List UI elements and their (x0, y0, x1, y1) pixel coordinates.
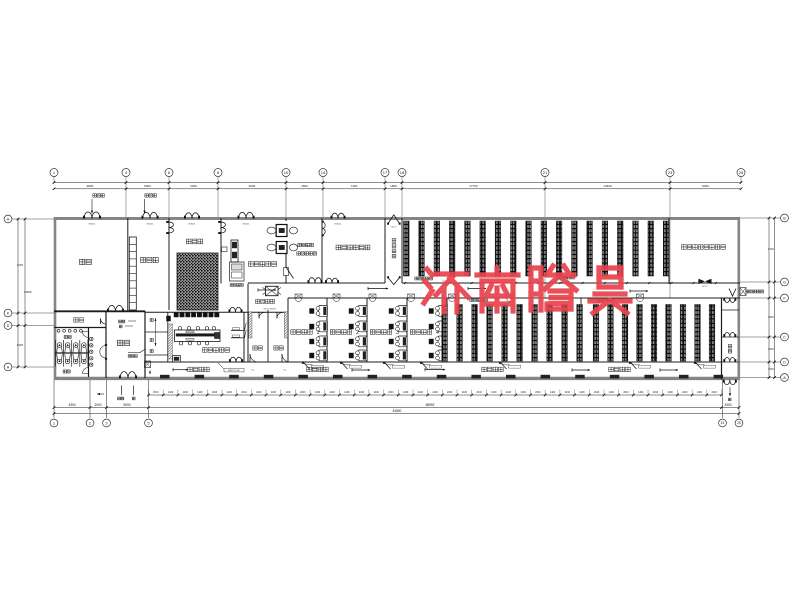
svg-text:4325: 4325 (17, 343, 24, 347)
svg-text:7225: 7225 (17, 263, 24, 267)
svg-text:M0921-1200: M0921-1200 (228, 370, 241, 372)
svg-text:2000: 2000 (724, 403, 731, 407)
svg-text:2043: 2043 (653, 391, 659, 394)
svg-text:1400: 1400 (374, 391, 380, 394)
svg-text:1400: 1400 (403, 391, 409, 394)
svg-text:A: A (7, 365, 10, 369)
svg-text:25: 25 (739, 170, 744, 175)
svg-text:2043: 2043 (300, 391, 306, 394)
svg-text:2043: 2043 (388, 391, 394, 394)
svg-text:14600: 14600 (603, 184, 612, 188)
svg-text:17: 17 (383, 170, 388, 175)
svg-text:14: 14 (321, 170, 326, 175)
svg-text:7400: 7400 (351, 184, 358, 188)
svg-text:23: 23 (668, 170, 673, 175)
svg-text:25: 25 (737, 421, 741, 425)
svg-text:1500: 1500 (768, 367, 774, 371)
svg-text:81800: 81800 (393, 409, 402, 413)
svg-text:1400: 1400 (520, 391, 526, 394)
svg-text:1800: 1800 (390, 184, 397, 188)
svg-text:1400: 1400 (667, 391, 673, 394)
svg-text:4500: 4500 (301, 184, 308, 188)
svg-text:2043: 2043 (183, 391, 189, 394)
svg-text:5000: 5000 (144, 184, 151, 188)
svg-text:M1521: M1521 (335, 224, 342, 226)
svg-text:D: D (7, 324, 10, 328)
svg-text:1400: 1400 (168, 391, 174, 394)
svg-text:2043: 2043 (506, 391, 512, 394)
svg-text:2043: 2043 (594, 391, 600, 394)
svg-text:17700: 17700 (469, 184, 478, 188)
svg-text:2043: 2043 (682, 391, 688, 394)
svg-text:2500: 2500 (768, 347, 774, 351)
svg-text:1400: 1400 (285, 391, 291, 394)
svg-text:A: A (783, 376, 786, 380)
svg-text:4200: 4200 (190, 184, 197, 188)
svg-text:68592: 68592 (426, 403, 435, 407)
svg-text:1400: 1400 (432, 391, 438, 394)
svg-text:4300: 4300 (68, 403, 75, 407)
svg-text:H: H (7, 217, 10, 221)
svg-text:1400: 1400 (697, 391, 703, 394)
svg-text:2043: 2043 (476, 391, 482, 394)
svg-text:1400: 1400 (638, 391, 644, 394)
svg-text:1400: 1400 (256, 391, 262, 394)
svg-text:G: G (783, 280, 786, 284)
svg-text:2043: 2043 (359, 391, 365, 394)
svg-text:1400: 1400 (197, 391, 203, 394)
svg-text:5000: 5000 (123, 403, 130, 407)
svg-text:24: 24 (721, 421, 725, 425)
svg-text:1400: 1400 (579, 391, 585, 394)
svg-text:6000: 6000 (249, 184, 256, 188)
svg-text:1400: 1400 (462, 391, 468, 394)
svg-text:2043: 2043 (565, 391, 571, 394)
svg-text:2043: 2043 (329, 391, 335, 394)
svg-text:2513: 2513 (153, 391, 159, 394)
svg-text:M1521: M1521 (89, 224, 96, 226)
svg-text:1400: 1400 (491, 391, 497, 394)
svg-text:21: 21 (543, 170, 548, 175)
svg-text:3: 3 (105, 420, 107, 425)
svg-text:5: 5 (147, 420, 149, 425)
svg-text:2: 2 (89, 420, 91, 425)
svg-text:K: K (7, 311, 10, 315)
svg-text:M727: M727 (702, 286, 708, 288)
svg-text:1: 1 (53, 420, 55, 425)
svg-text:B: B (783, 216, 786, 220)
svg-text:1400: 1400 (315, 391, 321, 394)
svg-text:9800: 9800 (87, 184, 94, 188)
svg-text:2043: 2043 (623, 391, 629, 394)
svg-text:M727: M727 (391, 227, 397, 229)
svg-text:M1521: M1521 (147, 224, 154, 226)
svg-text:2043: 2043 (212, 391, 218, 394)
svg-text:M1521: M1521 (189, 224, 196, 226)
svg-text:1400: 1400 (227, 391, 233, 394)
svg-text:10: 10 (284, 170, 289, 175)
svg-text:1400: 1400 (609, 391, 615, 394)
svg-text:M0921 M0921: M0921 M0921 (264, 309, 278, 311)
svg-text:2043: 2043 (447, 391, 453, 394)
svg-text:18: 18 (400, 170, 405, 175)
svg-text:2043: 2043 (711, 391, 717, 394)
svg-text:D: D (783, 360, 786, 364)
svg-text:M1521: M1521 (243, 224, 250, 226)
svg-text:3900: 3900 (768, 315, 774, 319)
svg-text:2043: 2043 (271, 391, 277, 394)
svg-text:1400: 1400 (344, 391, 350, 394)
svg-text:6400: 6400 (768, 247, 774, 251)
svg-text:2043: 2043 (535, 391, 541, 394)
svg-text:8300: 8300 (702, 184, 709, 188)
svg-text:14950: 14950 (24, 290, 32, 294)
svg-text:1400: 1400 (550, 391, 556, 394)
svg-text:2043: 2043 (418, 391, 424, 394)
svg-text:2000: 2000 (94, 403, 101, 407)
svg-text:C: C (783, 335, 786, 339)
svg-text:2043: 2043 (241, 391, 247, 394)
